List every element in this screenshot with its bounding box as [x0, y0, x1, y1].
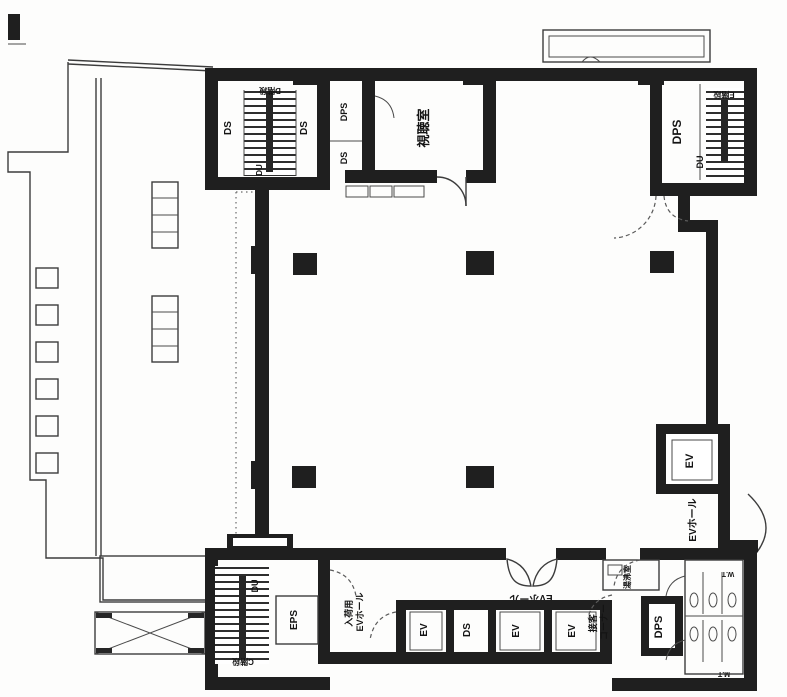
- mens-toilet-label: M.T: [717, 670, 730, 677]
- kitchenette-label: 湯沸室: [622, 565, 632, 589]
- shaft-label-dps: DPS: [339, 103, 349, 122]
- columns: [251, 68, 674, 489]
- stair-label-top-right: E階段: [713, 90, 734, 100]
- roof-ledge-top: [543, 30, 710, 62]
- stairwell-bottom-left: DU C階段 EPS: [215, 566, 318, 667]
- shaft-label-ds: DS: [462, 623, 473, 637]
- floor-plan-drawing: DS DS D階段 DU DPS DS 視聴室 DPS E階段 DU EV EV…: [0, 0, 787, 697]
- corner-site-mark: [8, 14, 26, 44]
- stair-label-top-left: D階段: [259, 86, 281, 96]
- ev-hall-label-right: EVホール: [687, 498, 699, 541]
- ev-hall-bottom: EVホール: [507, 559, 557, 604]
- dps-bottom-right: DPS: [641, 596, 683, 656]
- shaft-label-dps: DPS: [653, 616, 665, 639]
- terrace-wall-squares: [36, 268, 58, 473]
- loading-ev-hall: 入荷用 EVホール: [330, 570, 396, 640]
- stair-label-bottom-left: C階段: [232, 657, 254, 667]
- floor-plan-page: DS DS D階段 DU DPS DS 視聴室 DPS E階段 DU EV EV…: [0, 0, 787, 697]
- stairwell-top-left: DS DS D階段 DU: [223, 86, 310, 176]
- shaft-label-ds: DS: [339, 152, 349, 165]
- womens-toilet-label: W.T: [721, 570, 734, 577]
- elevator-label: EV: [684, 453, 696, 468]
- eave-dotted-lines: [236, 192, 255, 548]
- loading-ev-hall-label: 入荷用 EVホール: [343, 592, 365, 631]
- elevator-label: EV: [511, 624, 522, 638]
- shaft-label-ds: DS: [223, 121, 234, 135]
- av-room-label: 視聴室: [416, 108, 431, 148]
- elevator-label: EV: [419, 623, 430, 637]
- shaft-label-dps: DPS: [670, 120, 684, 145]
- elevator-label: EV: [567, 624, 578, 638]
- lift-platform-hatch: [95, 612, 205, 654]
- shaft-label-eps: EPS: [289, 610, 300, 630]
- terrace-outline: [8, 60, 213, 602]
- terrace-louver-strips: [152, 182, 178, 362]
- shaft-label-du: DU: [250, 580, 260, 593]
- shaft-label-du: DU: [695, 156, 705, 169]
- shaft-label-ds: DS: [299, 121, 310, 135]
- shaft-label-du: DU: [255, 164, 264, 176]
